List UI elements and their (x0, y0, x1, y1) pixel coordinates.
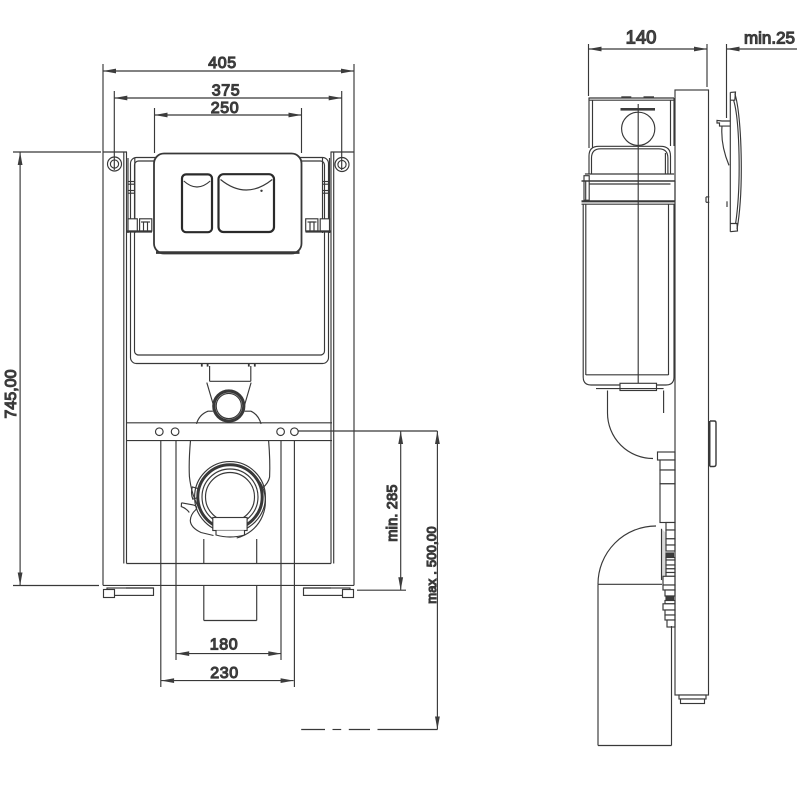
svg-text:250: 250 (211, 100, 240, 117)
svg-text:min.25: min.25 (744, 29, 795, 48)
svg-text:230: 230 (210, 665, 239, 682)
svg-text:180: 180 (210, 637, 239, 654)
svg-text:min. 285: min. 285 (385, 484, 401, 541)
svg-text:max . 500,00: max . 500,00 (424, 526, 439, 604)
svg-text:140: 140 (626, 27, 657, 48)
svg-text:375: 375 (212, 83, 241, 100)
svg-text:745,00: 745,00 (3, 369, 20, 418)
svg-text:405: 405 (208, 55, 237, 72)
